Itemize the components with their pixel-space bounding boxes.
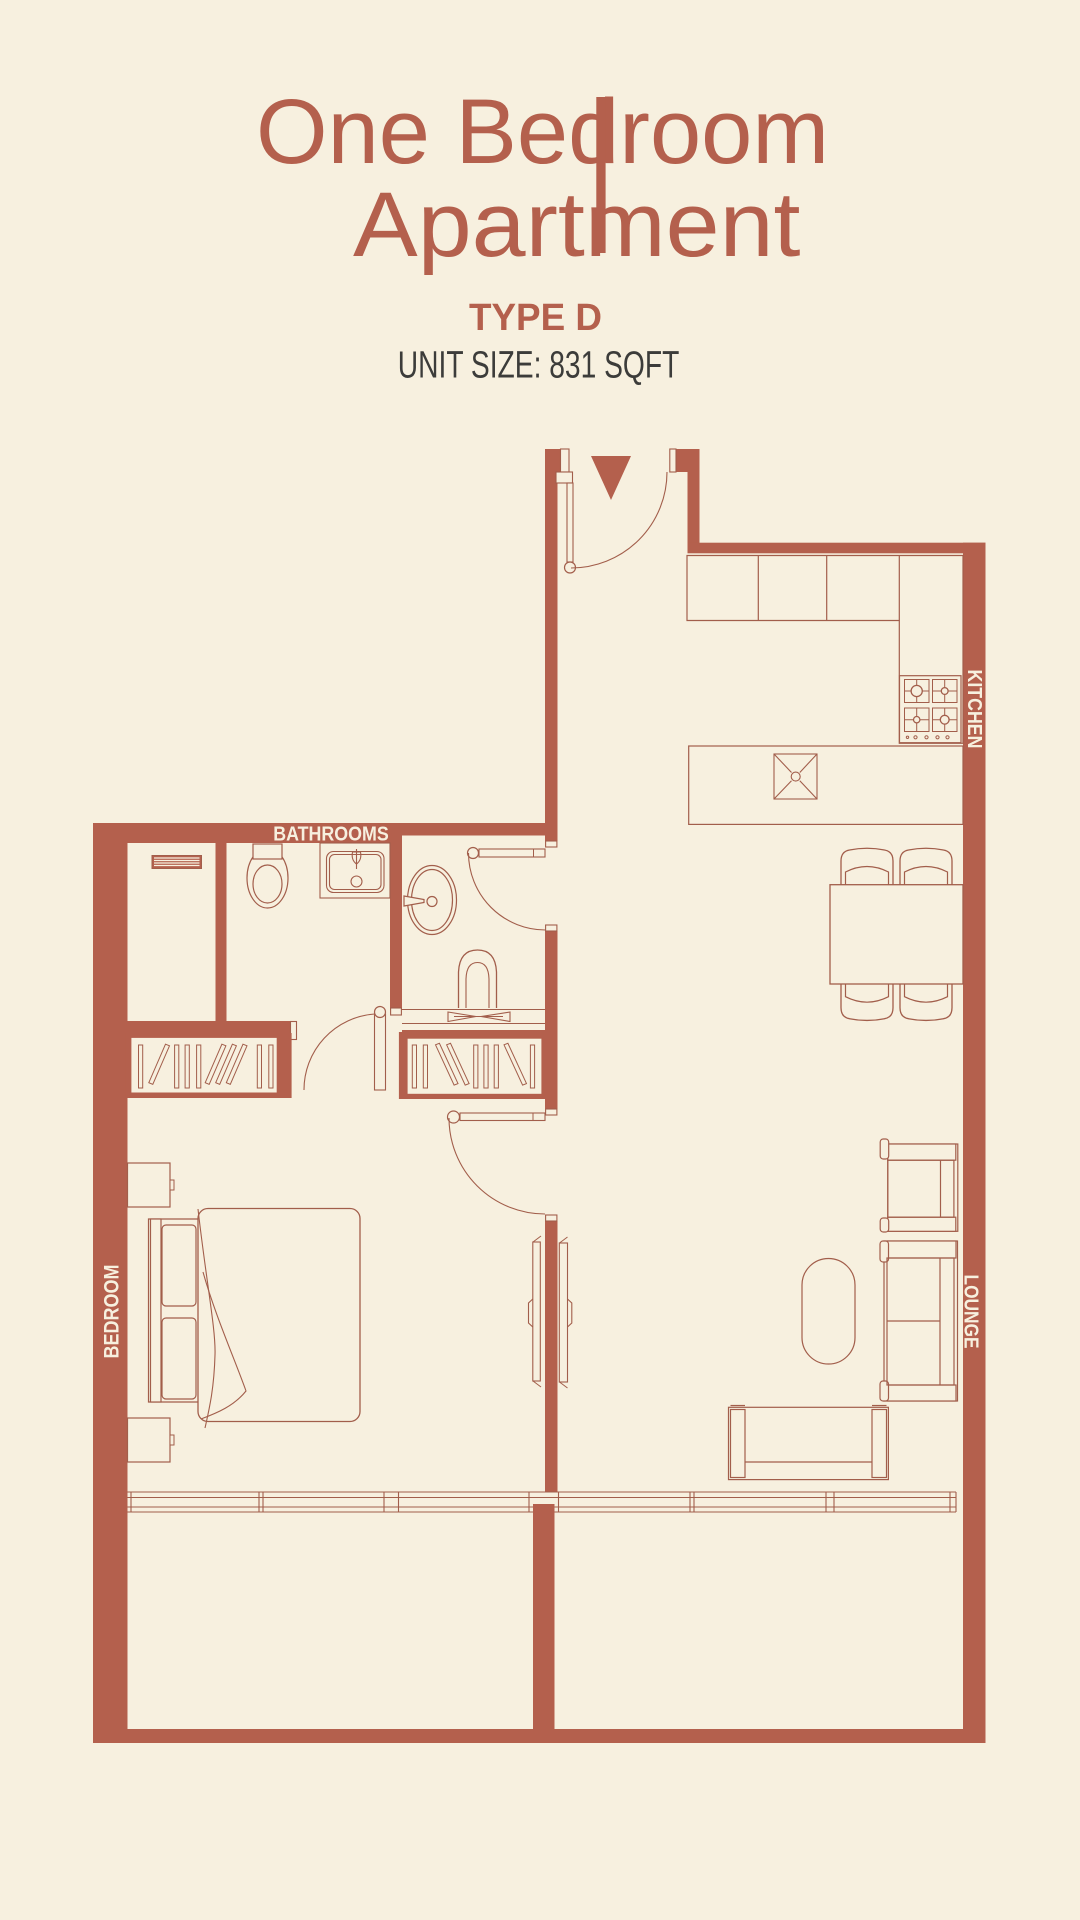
svg-text:Apartment: Apartment bbox=[353, 174, 801, 276]
svg-text:UNIT SIZE: 831 SQFT: UNIT SIZE: 831 SQFT bbox=[398, 345, 680, 387]
svg-text:BEDROOM: BEDROOM bbox=[100, 1265, 123, 1359]
svg-text:One Bedroom: One Bedroom bbox=[256, 81, 829, 183]
svg-text:LOUNGE: LOUNGE bbox=[960, 1275, 982, 1349]
svg-text:TYPE D: TYPE D bbox=[469, 297, 602, 339]
svg-text:BATHROOMS: BATHROOMS bbox=[273, 824, 389, 846]
svg-text:KITCHEN: KITCHEN bbox=[963, 670, 985, 749]
